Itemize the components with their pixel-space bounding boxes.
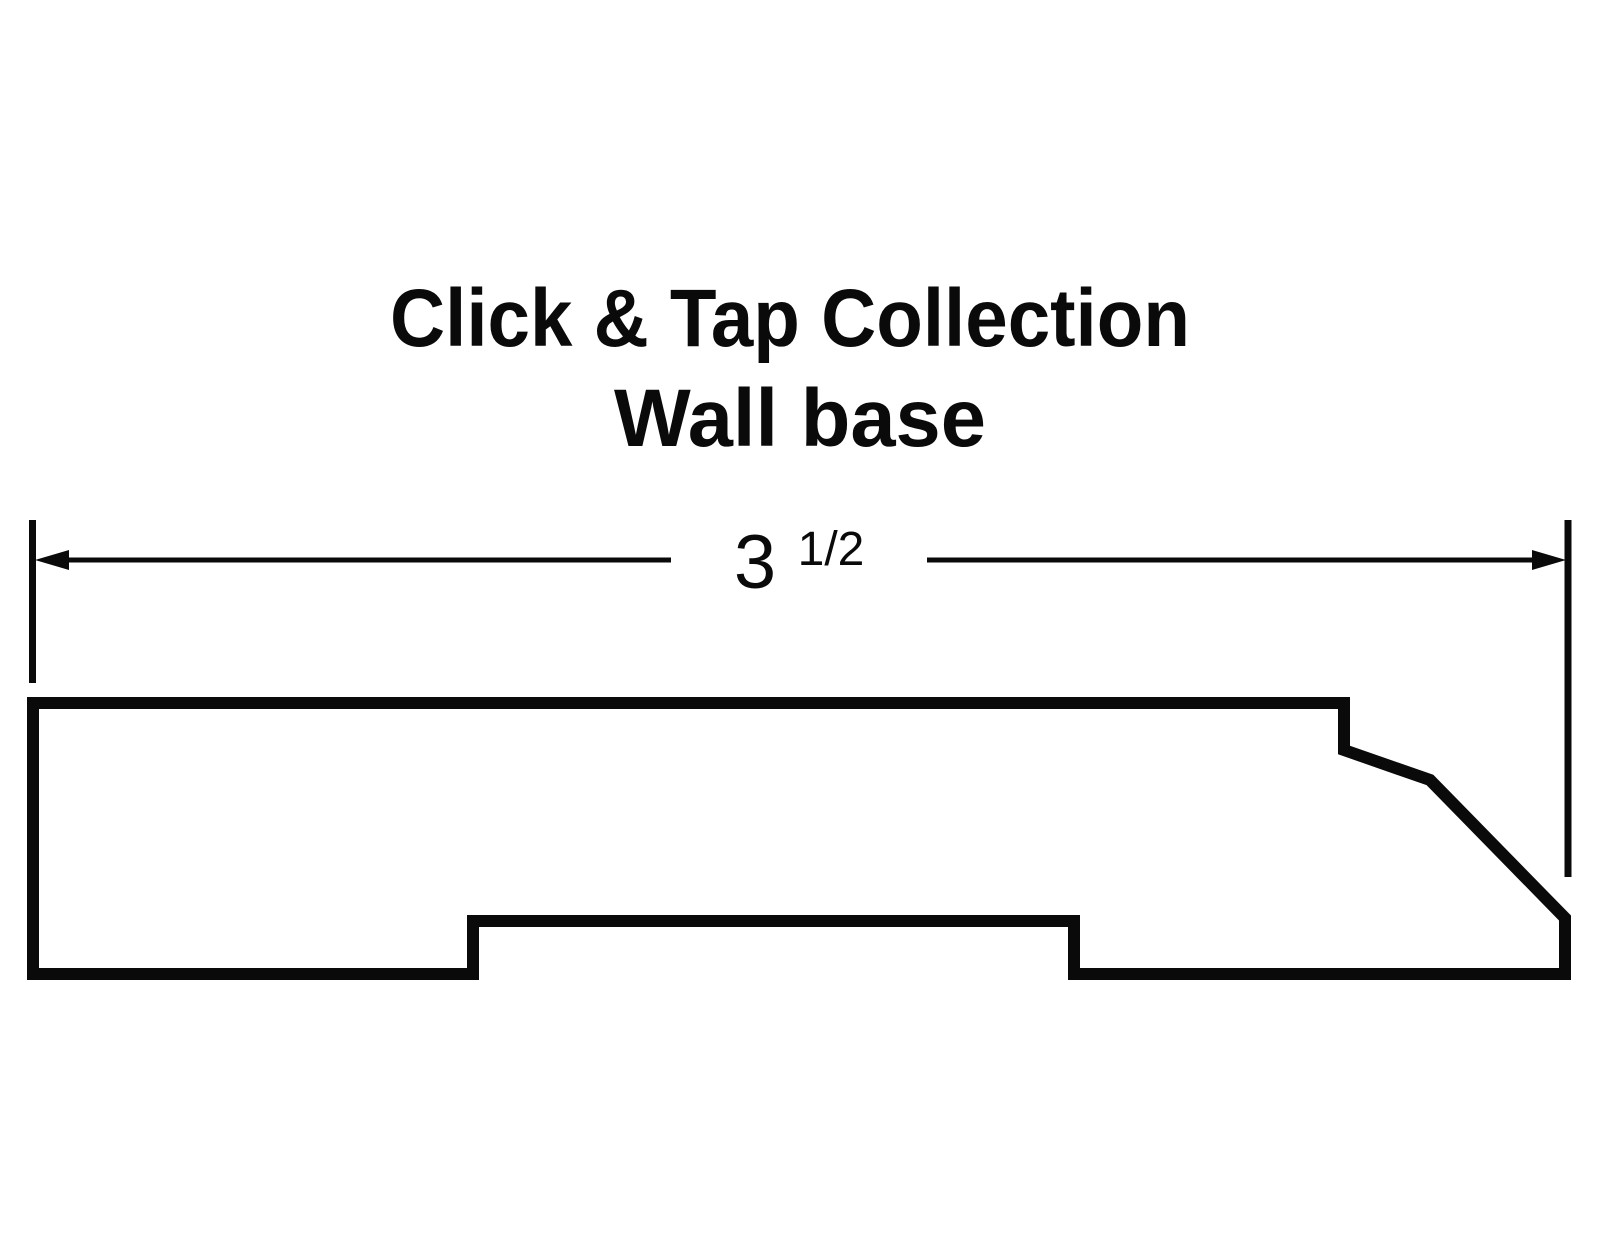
dimension-value-fraction: 1/2: [798, 523, 865, 576]
title-line-1: Click & Tap Collection: [390, 273, 1190, 364]
title-line-2: Wall base: [614, 373, 986, 464]
wall-base-profile-outline: [33, 703, 1565, 974]
left-arrowhead-icon: [35, 550, 69, 570]
wall-base-technical-drawing: Click & Tap Collection Wall base 3 1/2: [0, 0, 1600, 1248]
title-block: Click & Tap Collection Wall base: [390, 273, 1190, 464]
right-arrowhead-icon: [1532, 550, 1566, 570]
dimension-value-whole: 3: [734, 520, 776, 605]
diagram-page: Click & Tap Collection Wall base 3 1/2: [0, 0, 1600, 1248]
